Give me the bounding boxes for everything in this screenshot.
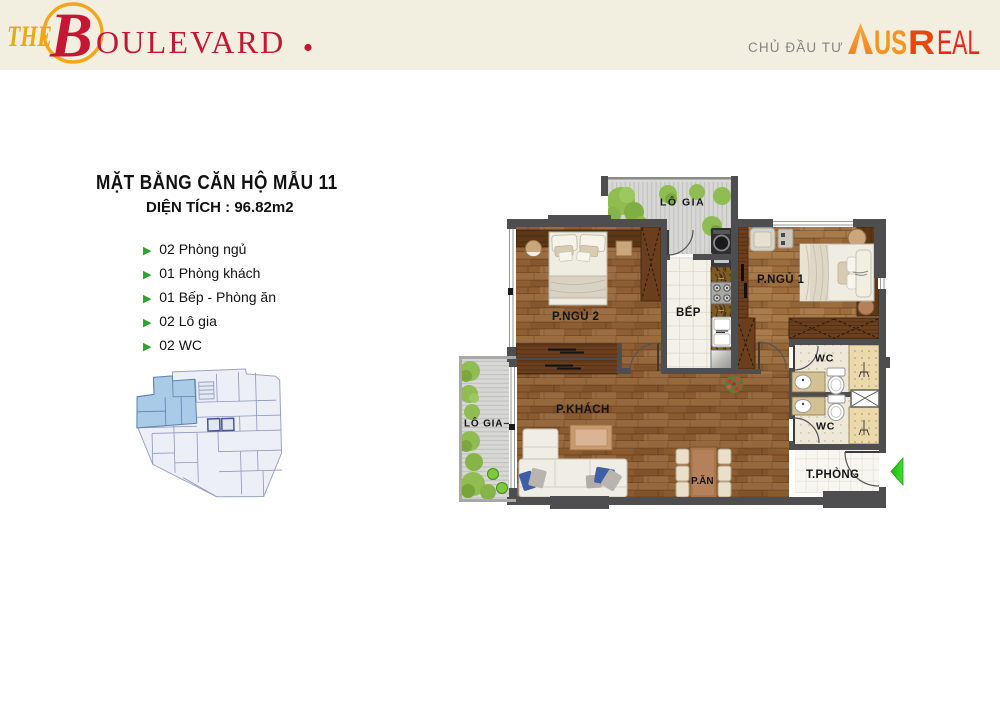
svg-text:B: B [49,0,93,70]
svg-text:P.NGỦ 1: P.NGỦ 1 [757,273,805,286]
svg-text:R: R [908,24,935,62]
svg-text:P.ĂN: P.ĂN [691,474,714,487]
svg-text:WC: WC [815,353,834,365]
svg-text:OULEVARD: OULEVARD [96,24,285,60]
svg-text:THE: THE [7,20,52,53]
svg-text:EAL: EAL [937,24,980,62]
svg-text:US: US [874,24,907,62]
svg-text:P.KHÁCH: P.KHÁCH [556,403,610,416]
svg-text:T.PHÒNG: T.PHÒNG [806,468,859,481]
svg-text:WC: WC [816,421,835,433]
svg-text:P.NGỦ 2: P.NGỦ 2 [552,310,599,323]
svg-text:BẾP: BẾP [676,306,701,319]
svg-text:LÔ GIA: LÔ GIA [464,417,503,430]
svg-text:LÔ GIA: LÔ GIA [660,196,705,209]
